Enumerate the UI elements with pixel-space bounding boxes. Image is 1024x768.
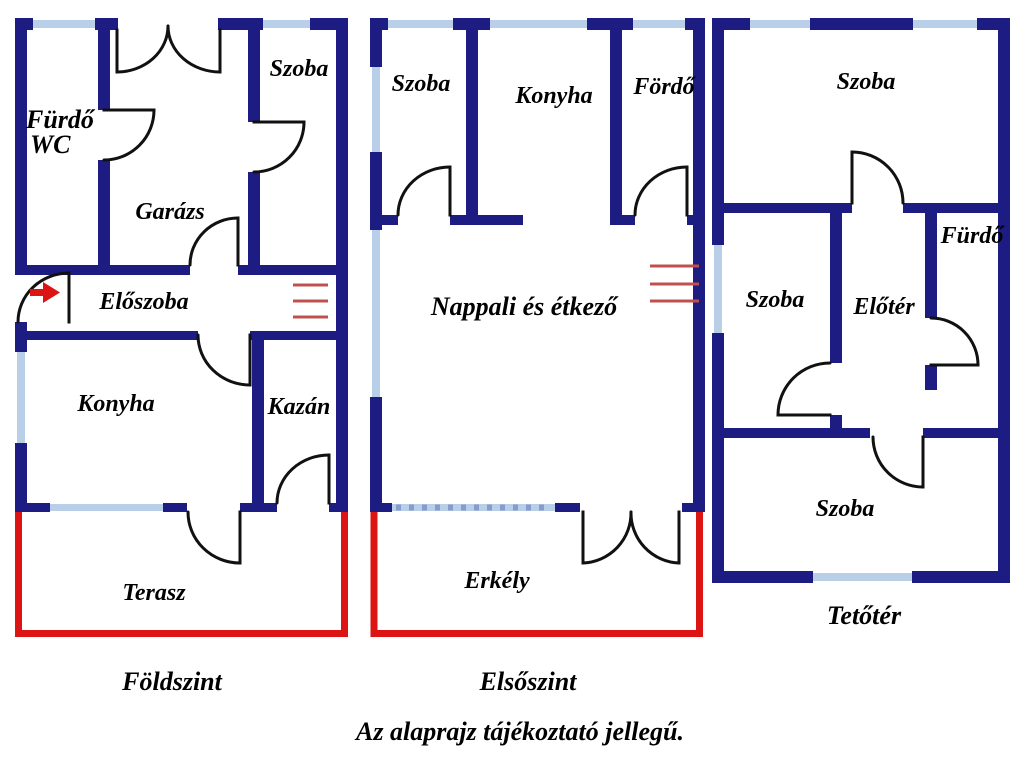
room-label-szoba: Szoba — [392, 71, 451, 97]
window — [50, 504, 163, 511]
room-label-terasz: Terasz — [122, 580, 186, 606]
room-label-eloszoba: Előszoba — [98, 289, 188, 315]
ground-walls — [15, 18, 348, 512]
stairs-first — [650, 266, 699, 301]
floorplan-first: Szoba Konyha Fördő Nappali és étkező Erk… — [370, 18, 705, 696]
room-label-erkely: Erkély — [463, 568, 530, 594]
window — [33, 20, 95, 28]
floorplan-ground: Fürdő WC Szoba Garázs Előszoba Konyha Ka… — [15, 18, 348, 696]
window — [372, 230, 380, 397]
door-arc — [852, 152, 903, 203]
door-arc — [254, 122, 304, 172]
floor-title-attic: Tetőtér — [827, 601, 902, 630]
window — [750, 20, 810, 28]
door-arc — [635, 167, 687, 215]
stairs-ground — [293, 285, 328, 317]
room-label-garazs: Garázs — [135, 199, 204, 225]
window — [714, 245, 722, 333]
room-label-konyha: Konyha — [514, 83, 592, 109]
disclaimer-text: Az alaprajz tájékoztató jellegű. — [354, 717, 684, 746]
door-arc — [104, 110, 154, 160]
room-label-szoba-top: Szoba — [837, 69, 896, 95]
room-label-szoba-left: Szoba — [746, 287, 805, 313]
floor-plan-page: Fürdő WC Szoba Garázs Előszoba Konyha Ka… — [0, 0, 1024, 768]
door-arc — [198, 335, 250, 385]
window — [17, 352, 25, 443]
floor-title-first: Elsőszint — [479, 667, 578, 696]
floor-plan-canvas: Fürdő WC Szoba Garázs Előszoba Konyha Ka… — [0, 0, 1024, 768]
window — [490, 20, 587, 28]
room-label-furdo-wc-line2: WC — [30, 130, 71, 159]
room-label-konyha: Konyha — [76, 391, 154, 417]
door-arc — [117, 26, 168, 72]
terrace-outline — [19, 512, 345, 634]
door-arc — [631, 512, 679, 563]
door-arc — [277, 455, 329, 503]
door-arc — [778, 363, 830, 415]
balcony-outline — [374, 512, 700, 634]
door-arc — [931, 318, 978, 365]
first-room-labels: Szoba Konyha Fördő Nappali és étkező Erk… — [392, 71, 697, 594]
room-label-szoba-bottom: Szoba — [816, 496, 875, 522]
window — [813, 573, 912, 581]
floor-title-ground: Földszint — [121, 667, 222, 696]
first-doors — [398, 167, 687, 563]
door-arc — [873, 437, 923, 487]
window — [633, 20, 685, 28]
door-arc — [168, 26, 220, 72]
window — [372, 67, 380, 152]
floorplan-attic: Szoba Szoba Előtér Fürdő Szoba Tetőtér — [712, 18, 1010, 630]
door-arc — [398, 167, 450, 215]
room-label-nappali: Nappali és étkező — [430, 292, 619, 321]
room-label-furdo: Fürdő — [940, 223, 1006, 249]
door-arc — [190, 218, 238, 265]
door-arc — [583, 512, 631, 563]
window — [263, 20, 310, 28]
room-label-szoba: Szoba — [270, 56, 329, 82]
door-arc — [188, 512, 240, 563]
window — [388, 20, 453, 28]
room-label-fordo: Fördő — [632, 74, 696, 100]
room-label-kazan: Kazán — [267, 394, 331, 420]
room-label-eloter: Előtér — [852, 294, 915, 320]
window — [913, 20, 977, 28]
